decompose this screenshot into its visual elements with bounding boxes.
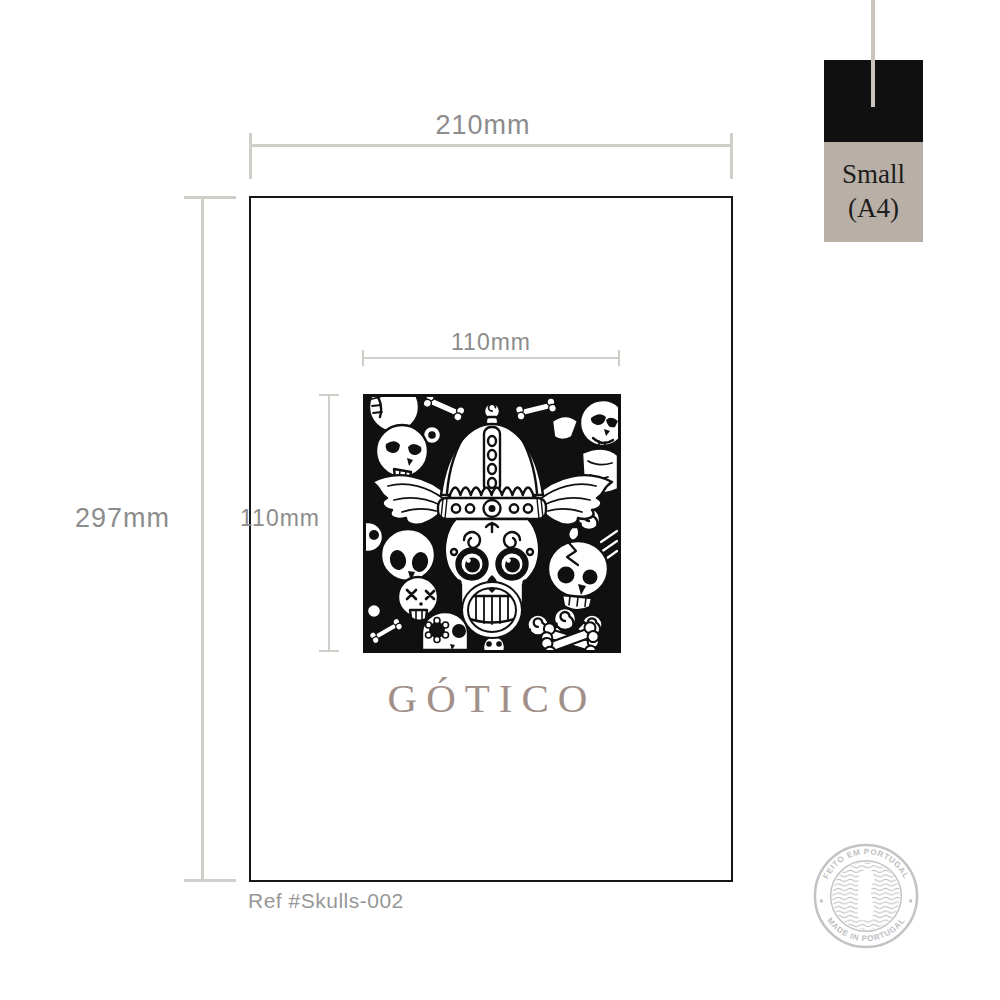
paper-width-label: 210mm [363, 110, 603, 141]
artwork-height-label: 110mm [230, 505, 320, 532]
size-name: Small [842, 158, 905, 192]
artwork-height-dim-tick-top [319, 394, 339, 396]
paper-height-dim-tick-top [184, 196, 236, 199]
artwork-height-dim-line [328, 395, 330, 652]
artwork-width-dim-tick-right [618, 350, 620, 366]
product-reference: Ref #Skulls-002 [248, 889, 404, 913]
artwork-width-label: 110mm [391, 329, 591, 356]
made-in-portugal-stamp: FEITO EM PORTUGAL MADE IN PORTUGAL [812, 842, 920, 950]
paper-width-dim-tick-right [730, 133, 733, 179]
badge-thread-line [871, 0, 875, 107]
paper-height-label: 297mm [58, 503, 170, 534]
paper-width-dim-line [250, 144, 732, 147]
paper-height-dim-line [201, 197, 204, 881]
size-badge: Small (A4) [824, 142, 923, 242]
product-spec-sheet: 210mm 297mm 110mm 110mm [0, 0, 1000, 1000]
paper-width-dim-tick-left [249, 133, 252, 179]
paper-height-dim-tick-bottom [184, 879, 236, 882]
artwork-height-dim-tick-bottom [319, 650, 339, 652]
artwork-width-dim-line [363, 357, 620, 359]
size-format: (A4) [848, 192, 899, 226]
stamp-icon: FEITO EM PORTUGAL MADE IN PORTUGAL [812, 842, 920, 950]
artwork-image [363, 394, 621, 653]
artwork-width-dim-tick-left [362, 350, 364, 366]
gothic-skull-artwork [366, 397, 618, 650]
artwork-title: GÓTICO [348, 674, 636, 722]
